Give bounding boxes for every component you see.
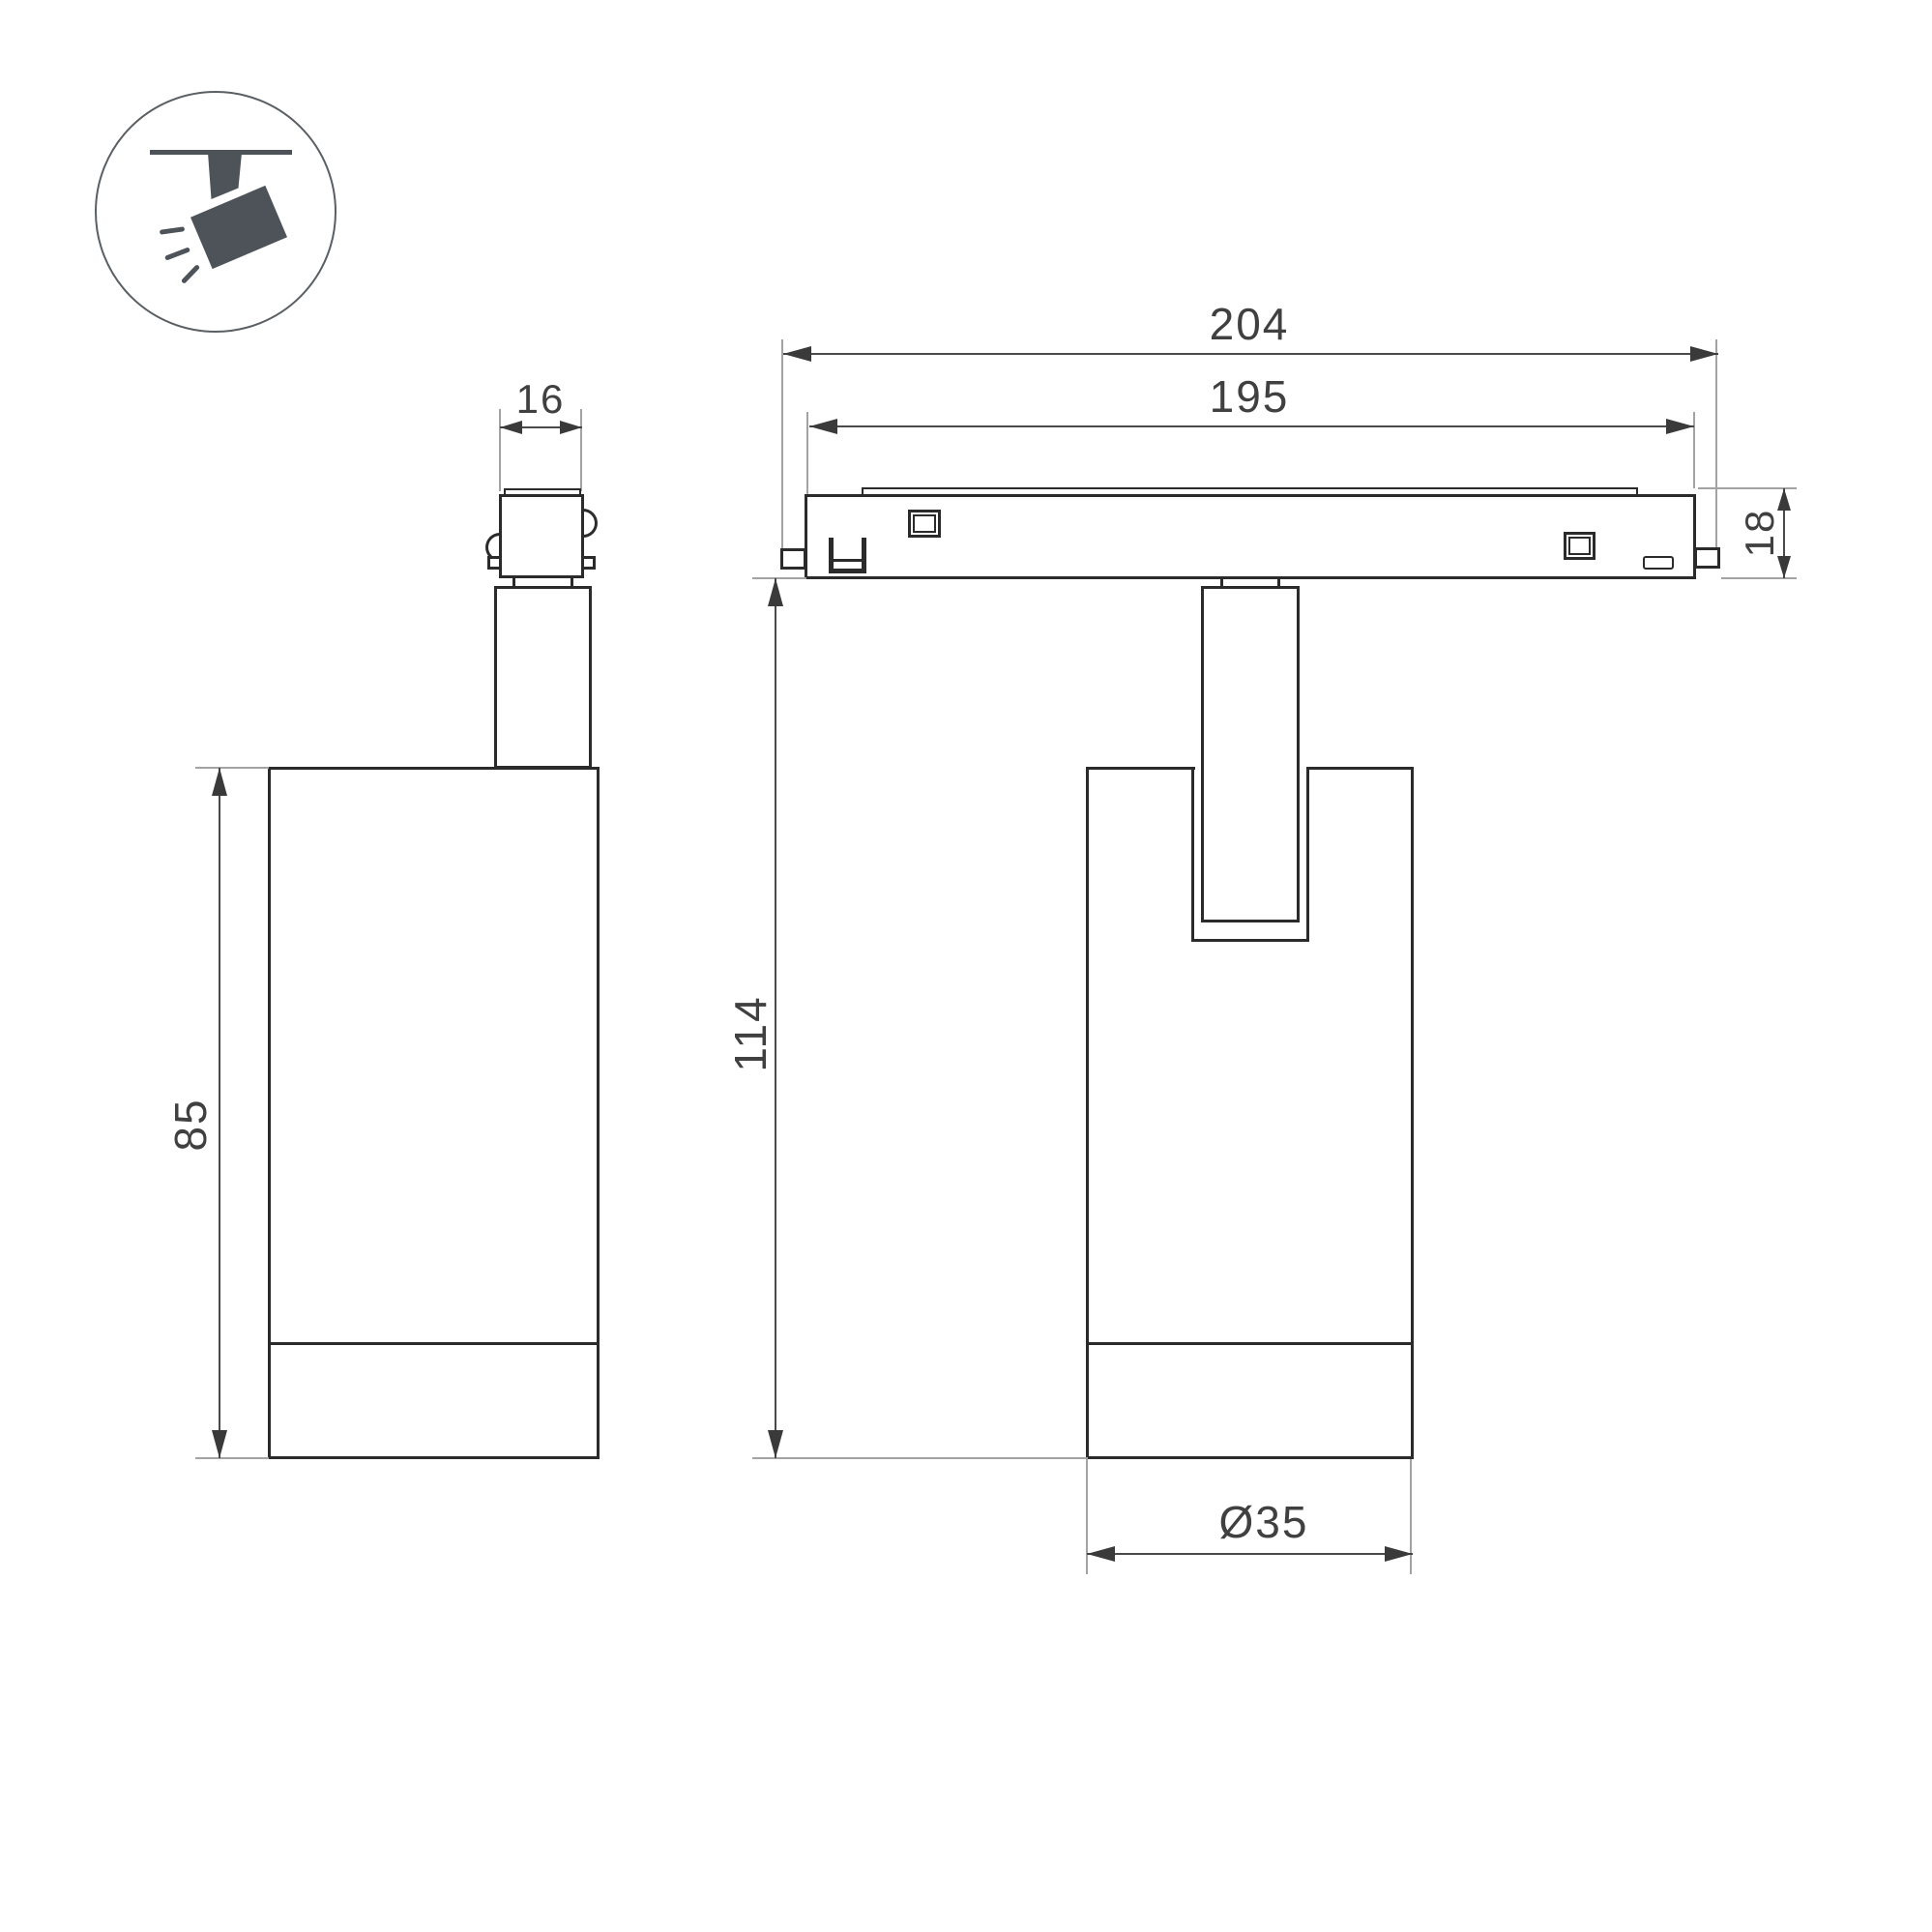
body-top-edge-right	[1306, 767, 1414, 770]
arrowhead-icon	[1666, 419, 1694, 434]
track-slot	[1643, 556, 1674, 570]
window-inner-frame	[1568, 537, 1591, 555]
window-inner-frame	[913, 514, 936, 533]
front-view: 204 195	[0, 0, 1932, 1932]
dimension-line	[1087, 1553, 1413, 1555]
body-top-edge-left	[1086, 767, 1195, 770]
dimension-label-track-body: 195	[1210, 374, 1290, 419]
dimension-label-track-overall: 204	[1210, 302, 1290, 346]
track-window-left	[908, 510, 941, 538]
arrowhead-icon	[1777, 556, 1791, 578]
track-end-tab-right	[1694, 547, 1720, 569]
dimension-label-overall-height: 114	[728, 995, 773, 1071]
arrowhead-icon	[809, 419, 837, 434]
track-end-tab-left	[780, 548, 806, 570]
track-contact-bracket	[829, 538, 866, 573]
extension-line	[806, 412, 808, 496]
bracket-inner-line	[834, 559, 862, 562]
dimension-label-track-height: 18	[1740, 509, 1780, 558]
arrowhead-icon	[1777, 488, 1791, 511]
arrowhead-icon	[768, 1430, 783, 1458]
trim-ring-line	[1086, 1342, 1414, 1345]
technical-drawing-canvas: 16 85 204 195	[0, 0, 1932, 1932]
arrowhead-icon	[768, 578, 783, 606]
arrowhead-icon	[1087, 1546, 1115, 1562]
arrowhead-icon	[1385, 1546, 1413, 1562]
dimension-label-head-diameter: Ø35	[1219, 1500, 1309, 1544]
extension-line	[752, 1457, 1088, 1459]
extension-line	[1715, 339, 1717, 548]
arrowhead-icon	[783, 346, 811, 362]
extension-line	[781, 339, 783, 550]
arrowhead-icon	[1690, 346, 1718, 362]
track-window-right	[1564, 532, 1595, 560]
stem	[1201, 586, 1300, 922]
dimension-line	[809, 425, 1694, 427]
dimension-line	[783, 353, 1718, 355]
